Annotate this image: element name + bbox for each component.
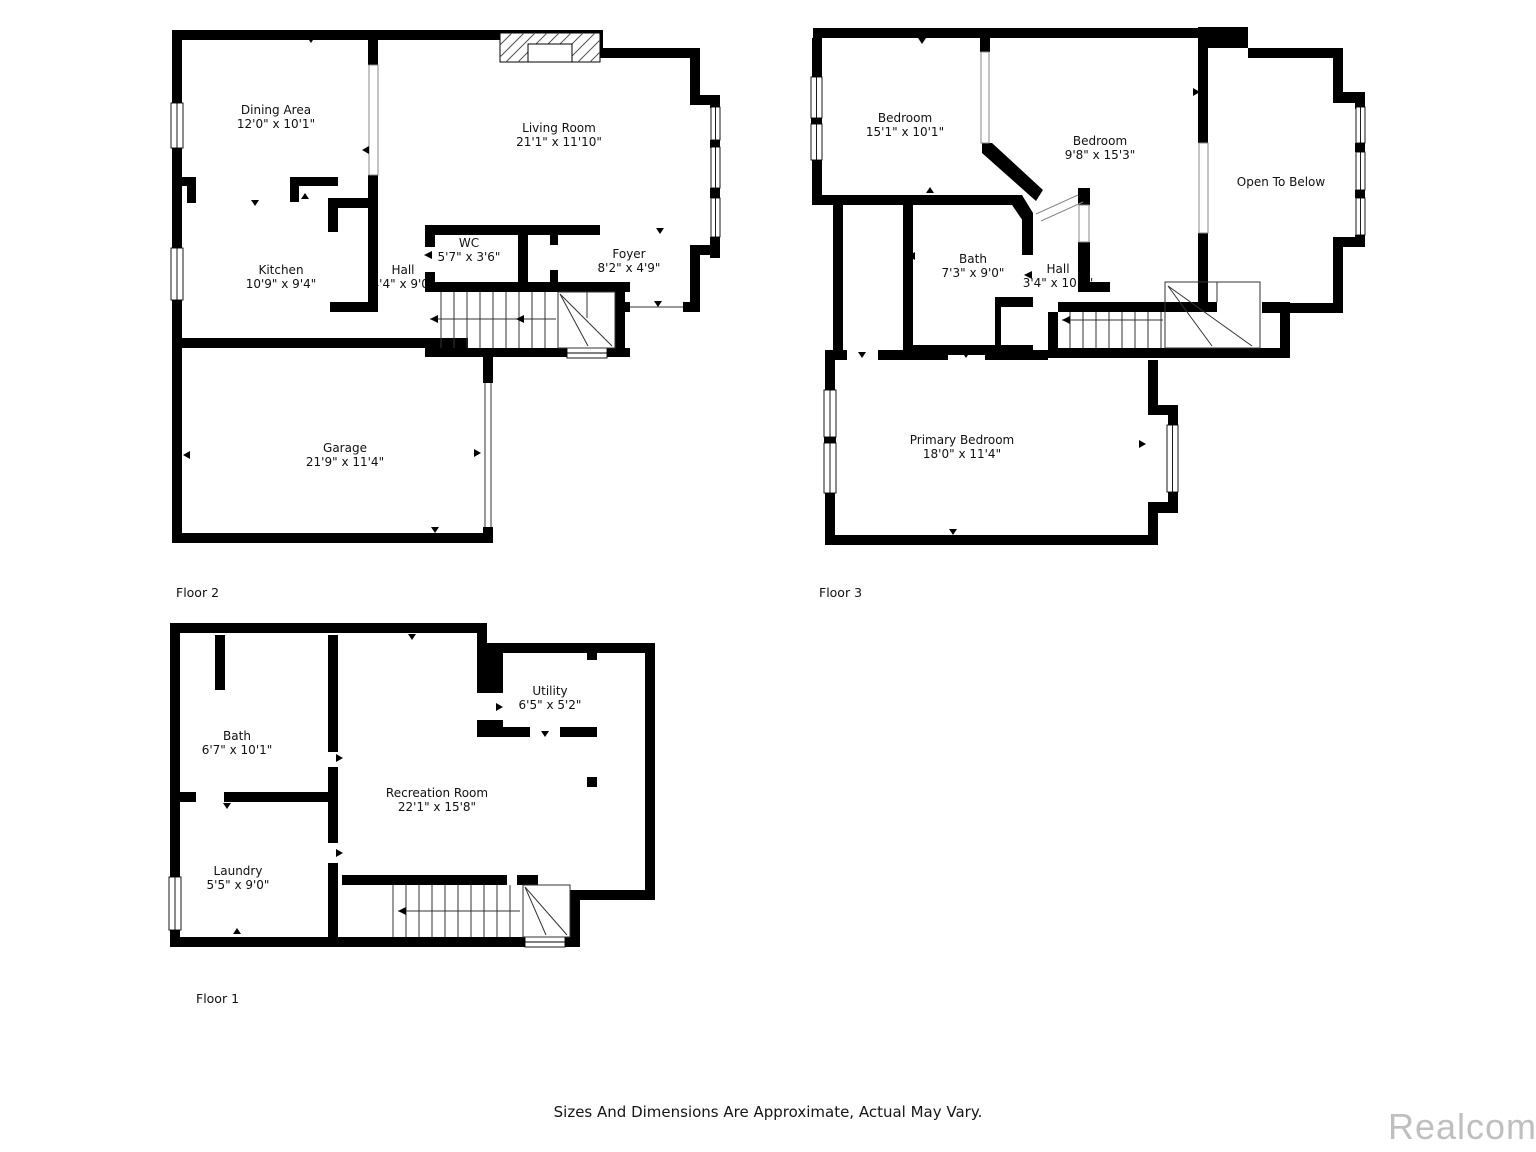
disclaimer-text: Sizes And Dimensions Are Approximate, Ac… xyxy=(0,1103,1536,1121)
room-label-bedroom-2: Bedroom 9'8" x 15'3" xyxy=(1065,134,1136,162)
room-name: Recreation Room xyxy=(386,786,488,800)
floor-3-tag: Floor 3 xyxy=(819,585,862,600)
window-icon xyxy=(171,103,720,358)
floor-1-walls xyxy=(170,623,655,947)
room-label-bedroom-1: Bedroom 15'1" x 10'1" xyxy=(866,111,944,139)
room-name: Dining Area xyxy=(237,103,315,117)
room-label-kitchen: Kitchen 10'9" x 9'4" xyxy=(246,263,317,291)
room-name: Garage xyxy=(306,441,384,455)
room-dims: 4'4" x 9'0" xyxy=(372,277,435,291)
stair-arrow-icon xyxy=(398,907,406,915)
room-name: WC xyxy=(438,236,501,250)
floor-1-tag: Floor 1 xyxy=(196,991,239,1006)
room-dims: 15'1" x 10'1" xyxy=(866,125,944,139)
room-label-hall-floor2: Hall 4'4" x 9'0" xyxy=(372,263,435,291)
stair-arrow-icon xyxy=(516,315,524,323)
room-label-bath-floor1: Bath 6'7" x 10'1" xyxy=(202,729,273,757)
room-label-living-room: Living Room 21'1" x 11'10" xyxy=(516,121,602,149)
room-dims: 5'5" x 9'0" xyxy=(207,878,270,892)
realcomp-watermark: Realcomp xyxy=(1388,1106,1536,1148)
room-name: Bedroom xyxy=(1065,134,1136,148)
room-name: Foyer xyxy=(598,247,661,261)
room-name: Hall xyxy=(372,263,435,277)
room-dims: 21'9" x 11'4" xyxy=(306,455,384,469)
room-name: Laundry xyxy=(207,864,270,878)
room-dims: 22'1" x 15'8" xyxy=(386,800,488,814)
floor-2-tag: Floor 2 xyxy=(176,585,219,600)
staircase-icon xyxy=(393,885,570,937)
room-name: Bath xyxy=(202,729,273,743)
stair-arrow-icon xyxy=(1062,316,1070,324)
room-dims: 3'4" x 10'4" xyxy=(1023,276,1094,290)
room-label-wc: WC 5'7" x 3'6" xyxy=(438,236,501,264)
room-label-garage: Garage 21'9" x 11'4" xyxy=(306,441,384,469)
room-label-foyer: Foyer 8'2" x 4'9" xyxy=(598,247,661,275)
room-name: Bath xyxy=(942,252,1005,266)
stair-arrow-icon xyxy=(430,315,438,323)
room-name: Living Room xyxy=(516,121,602,135)
room-label-recreation-room: Recreation Room 22'1" x 15'8" xyxy=(386,786,488,814)
room-dims: 8'2" x 4'9" xyxy=(598,261,661,275)
room-name: Bedroom xyxy=(866,111,944,125)
fireplace-icon xyxy=(500,33,600,62)
room-label-dining-area: Dining Area 12'0" x 10'1" xyxy=(237,103,315,131)
room-dims: 6'7" x 10'1" xyxy=(202,743,273,757)
room-dims: 6'5" x 5'2" xyxy=(519,698,582,712)
staircase-icon xyxy=(430,292,683,527)
room-label-hall-floor3: Hall 3'4" x 10'4" xyxy=(1023,262,1094,290)
room-name: Open To Below xyxy=(1237,175,1325,189)
room-label-laundry: Laundry 5'5" x 9'0" xyxy=(207,864,270,892)
room-label-bath-floor3: Bath 7'3" x 9'0" xyxy=(942,252,1005,280)
room-dims: 18'0" x 11'4" xyxy=(910,447,1014,461)
room-dims: 7'3" x 9'0" xyxy=(942,266,1005,280)
room-label-utility: Utility 6'5" x 5'2" xyxy=(519,684,582,712)
room-dims: 12'0" x 10'1" xyxy=(237,117,315,131)
room-dims: 9'8" x 15'3" xyxy=(1065,148,1136,162)
room-dims: 5'7" x 3'6" xyxy=(438,250,501,264)
room-dims: 21'1" x 11'10" xyxy=(516,135,602,149)
room-name: Primary Bedroom xyxy=(910,433,1014,447)
cased-opening-icon xyxy=(369,65,378,175)
room-label-primary-bedroom: Primary Bedroom 18'0" x 11'4" xyxy=(910,433,1014,461)
room-name: Utility xyxy=(519,684,582,698)
room-name: Hall xyxy=(1023,262,1094,276)
floorplan-page: Dining Area 12'0" x 10'1" Living Room 21… xyxy=(0,0,1536,1152)
floor-1-plan xyxy=(169,623,655,947)
room-name: Kitchen xyxy=(246,263,317,277)
room-label-open-to-below: Open To Below xyxy=(1237,175,1325,189)
room-dims: 10'9" x 9'4" xyxy=(246,277,317,291)
staircase-icon xyxy=(1062,282,1260,348)
floorplan-canvas xyxy=(0,0,1536,1152)
